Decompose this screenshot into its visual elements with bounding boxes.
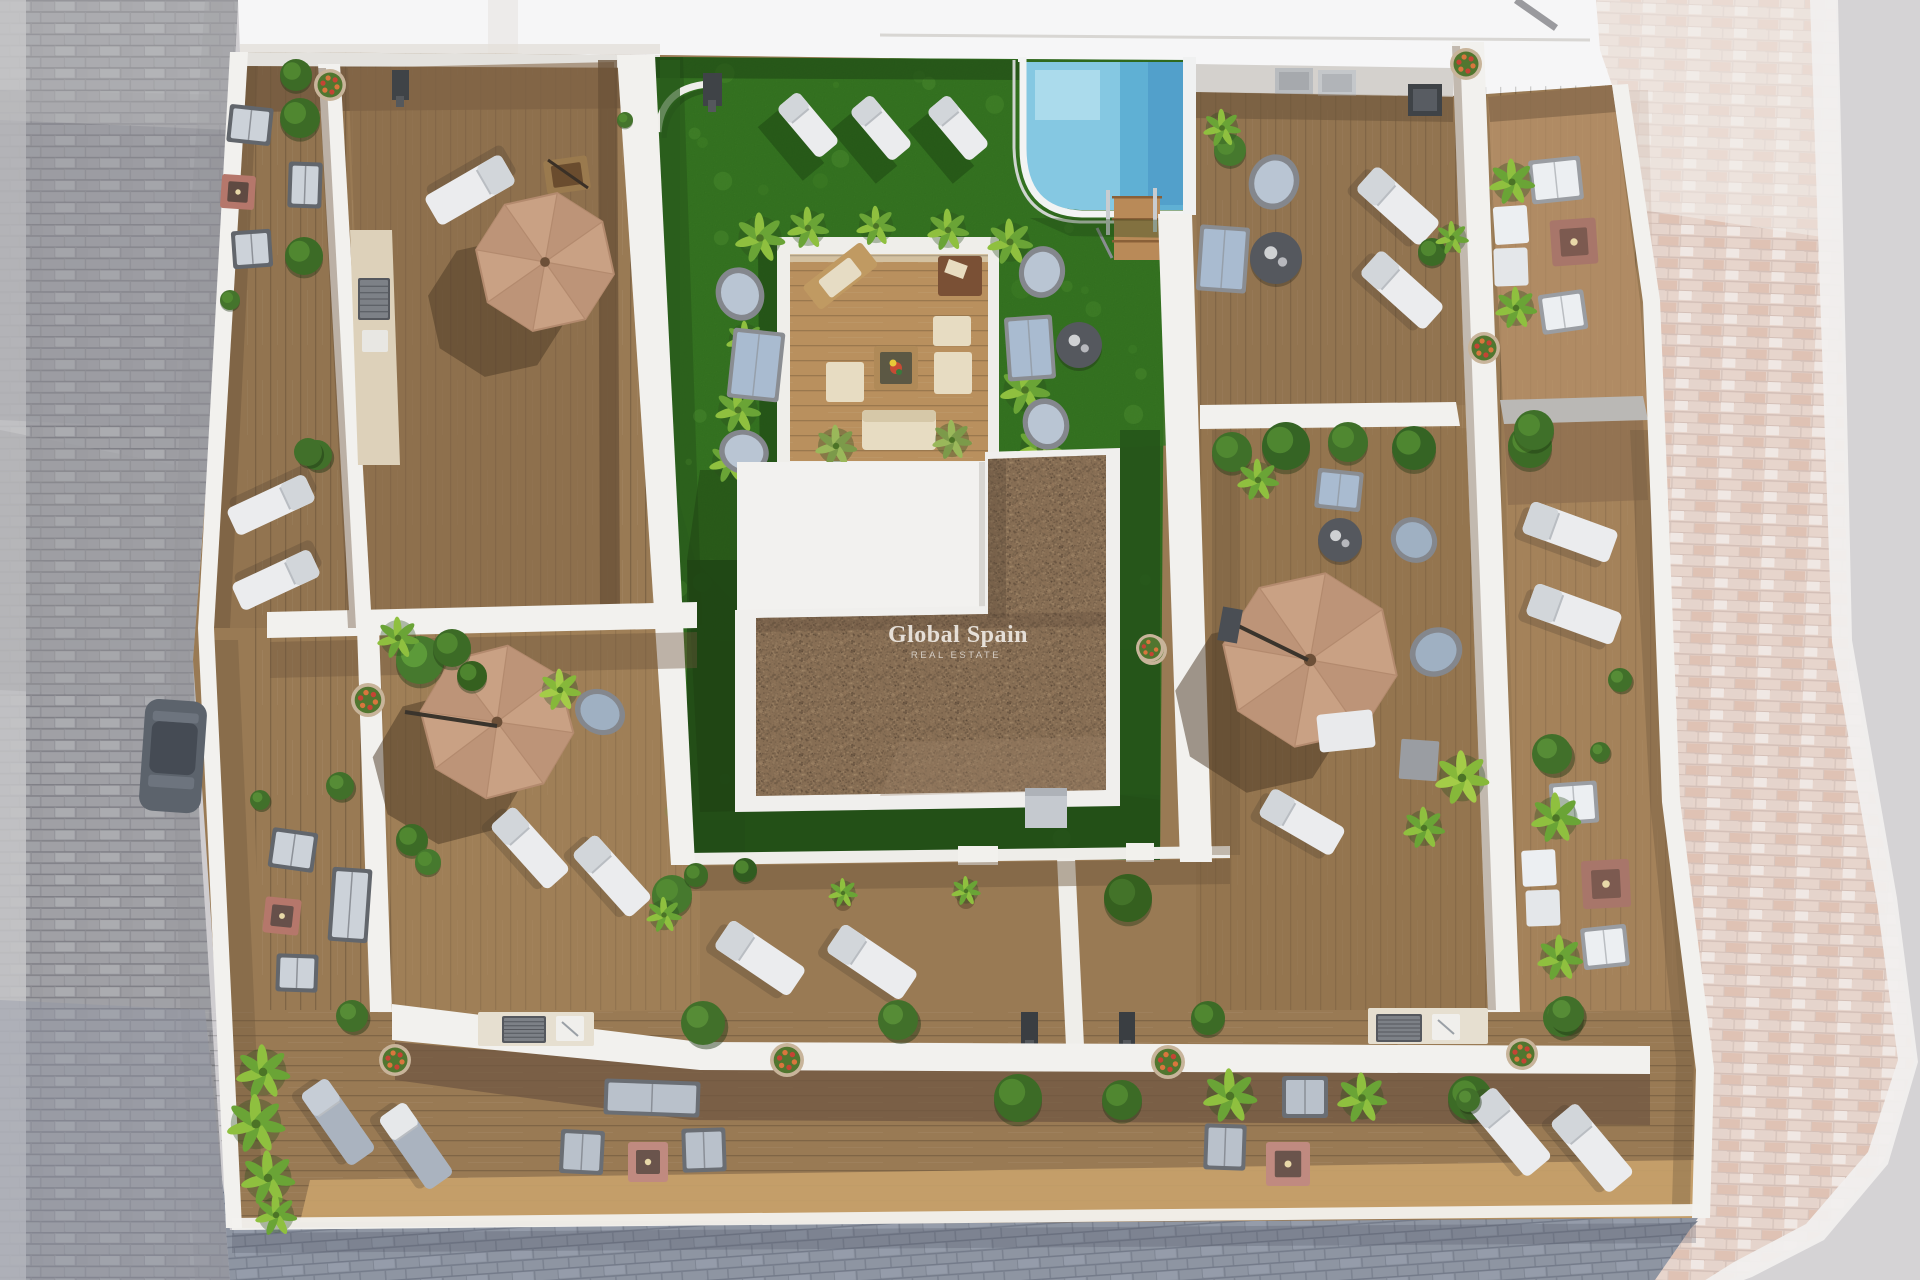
svg-text:REAL ESTATE: REAL ESTATE [911,650,1001,661]
svg-text:Global Spain: Global Spain [888,622,1028,648]
